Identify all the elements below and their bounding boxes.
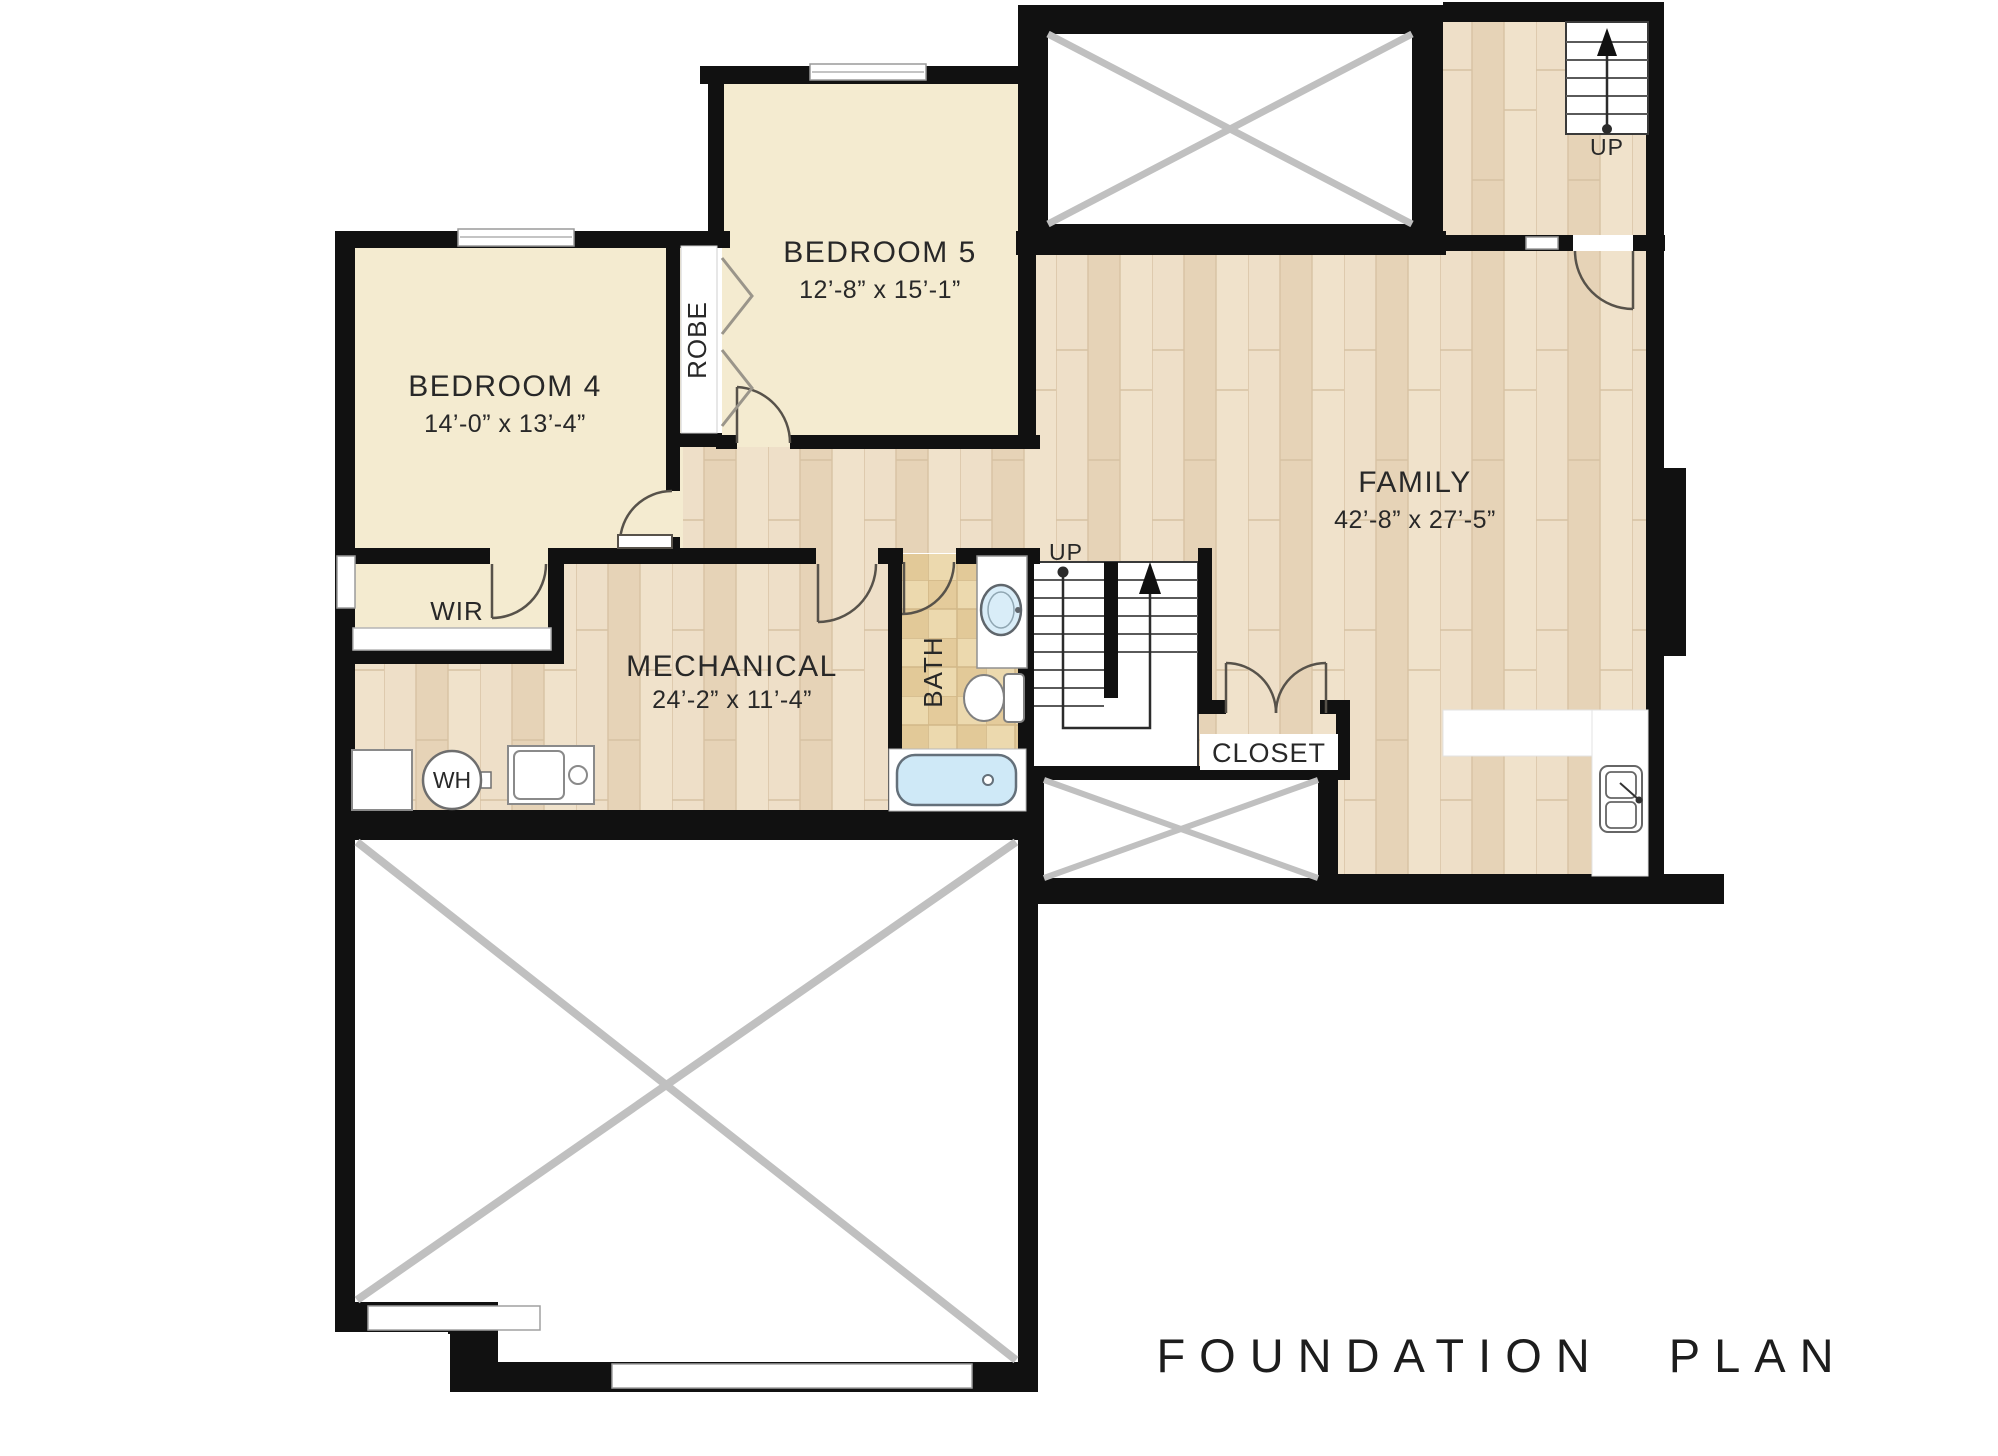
- mechanical-dims: 24’-2” x 11’-4”: [652, 686, 812, 714]
- wall-bedroom5-bottom-a: [716, 435, 737, 449]
- bath-faucet: [1015, 607, 1021, 613]
- kitchen-sink-bowl-bottom: [1606, 802, 1636, 828]
- bathtub: [897, 755, 1016, 805]
- water-heater-valve: [481, 772, 491, 788]
- bath-label: BATH: [918, 636, 948, 707]
- wall-bedroom4-east: [666, 231, 680, 491]
- garage-door-right: [612, 1364, 972, 1388]
- wall-bedroom5-east: [1018, 66, 1036, 449]
- laundry-tub-basin: [514, 751, 564, 799]
- wall-stairs-east: [1198, 548, 1212, 704]
- wall-hall-south-b: [548, 548, 816, 564]
- entry-stairs-up-label: UP: [1590, 134, 1624, 160]
- wall-robe-bottom: [666, 433, 722, 447]
- laundry-tub-drain: [569, 766, 587, 784]
- wir-window: [337, 556, 355, 608]
- wall-closet-east: [1336, 700, 1350, 780]
- bedroom4-dims: 14’-0” x 13’-4”: [424, 410, 586, 438]
- wall-family-north: [1016, 231, 1446, 255]
- bathtub-drain: [983, 775, 993, 785]
- mechanical-label: MECHANICAL: [626, 650, 838, 683]
- bedroom5-label: BEDROOM 5: [783, 236, 977, 269]
- wir-shelf: [353, 628, 551, 650]
- wir-label: WIR: [430, 596, 484, 626]
- bedroom5-dims: 12’-8” x 15’-1”: [799, 276, 961, 304]
- family-label: FAMILY: [1358, 466, 1471, 499]
- wall-bedroom5-bottom-b: [790, 435, 1040, 449]
- wall-bedroom5-west: [708, 66, 724, 248]
- wall-east-bump: [1664, 468, 1686, 656]
- toilet-bowl: [964, 675, 1004, 721]
- kitchen-sink-faucet: [1636, 797, 1643, 804]
- entry-stairs-walkline-start: [1602, 124, 1612, 134]
- garage-door-left: [368, 1306, 540, 1330]
- entry-door-opening: [1573, 235, 1633, 251]
- plan-title: FOUNDATION PLAN: [1156, 1329, 1847, 1382]
- entry-window: [1526, 237, 1558, 249]
- bedroom4-door-leaf: [618, 535, 672, 548]
- family-dims: 42’-8” x 27’-5”: [1334, 506, 1496, 534]
- main-stairs-walkline-start: [1058, 567, 1069, 578]
- toilet-tank: [1004, 674, 1024, 722]
- exterior-cutout: [335, 1332, 448, 1394]
- closet-label: CLOSET: [1212, 738, 1326, 768]
- entry-stairs: [1566, 22, 1648, 134]
- water-heater-label: WH: [433, 767, 471, 793]
- bedroom4-label: BEDROOM 4: [408, 370, 602, 403]
- wall-closet-north-a: [1198, 700, 1226, 714]
- wall-family-south: [1016, 874, 1724, 904]
- foundation-floor-plan: BEDROOM 5 12’-8” x 15’-1” BEDROOM 4 14’-…: [0, 0, 1998, 1456]
- main-stairs-up-label: UP: [1049, 539, 1083, 565]
- hall-floor: [678, 433, 1035, 553]
- robe-label: ROBE: [682, 301, 712, 379]
- appliance-box: [352, 750, 412, 810]
- wall-hall-south-a: [335, 548, 490, 564]
- wall-stairs-divider: [1104, 562, 1118, 698]
- wall-entry-north: [1443, 2, 1664, 22]
